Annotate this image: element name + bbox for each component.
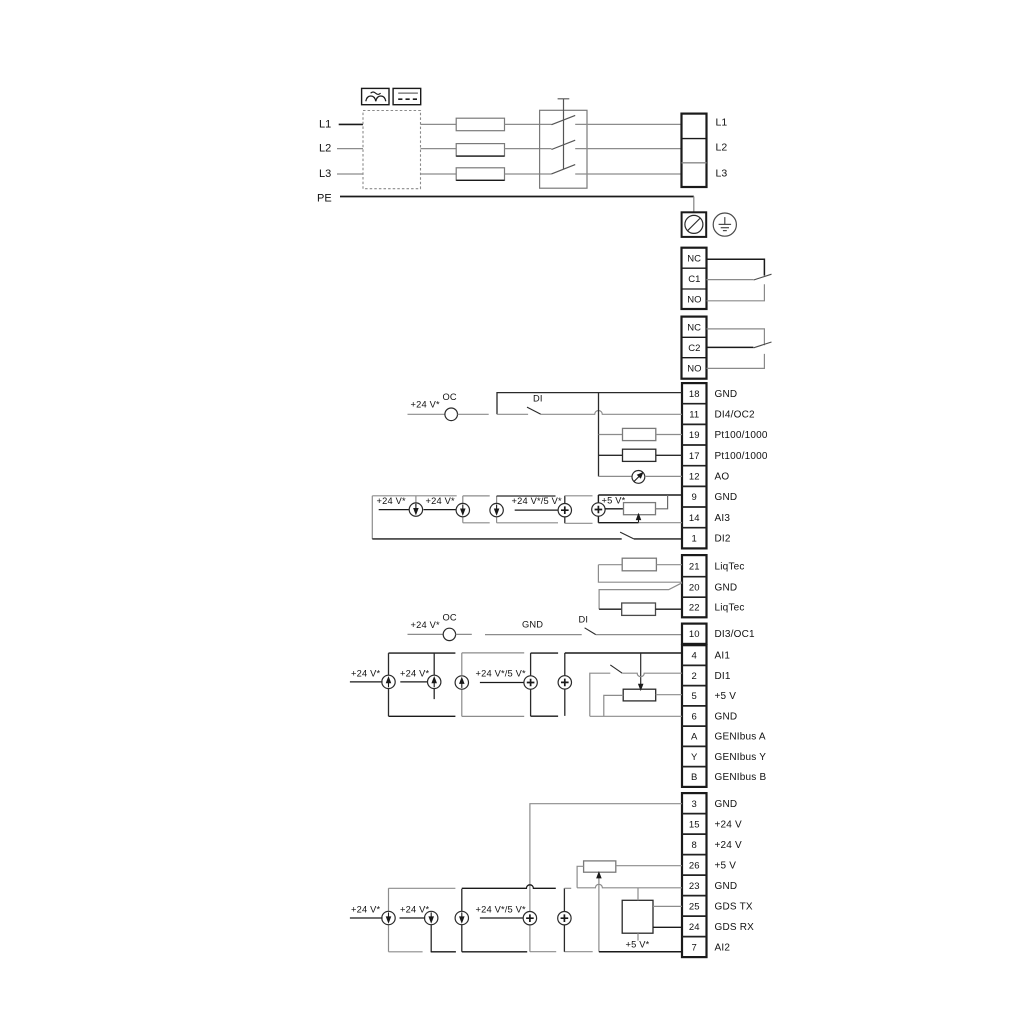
- svg-text:25: 25: [689, 901, 700, 912]
- svg-text:+5 V*: +5 V*: [626, 940, 650, 950]
- svg-text:DI1: DI1: [715, 671, 731, 682]
- svg-text:+24 V*: +24 V*: [411, 620, 440, 630]
- svg-text:DI2: DI2: [715, 534, 731, 545]
- svg-text:+5 V*: +5 V*: [602, 496, 626, 506]
- svg-text:L2: L2: [319, 143, 331, 155]
- svg-text:+5 V: +5 V: [715, 691, 737, 702]
- svg-text:NC: NC: [687, 322, 701, 333]
- svg-text:+24 V: +24 V: [715, 840, 743, 851]
- svg-text:AI1: AI1: [715, 651, 731, 662]
- svg-text:1: 1: [692, 534, 697, 545]
- svg-text:Pt100/1000: Pt100/1000: [715, 430, 768, 441]
- svg-text:DI4/OC2: DI4/OC2: [715, 409, 756, 420]
- svg-text:+24 V: +24 V: [715, 819, 743, 830]
- svg-text:LiqTec: LiqTec: [715, 603, 745, 614]
- svg-text:GDS TX: GDS TX: [715, 901, 753, 912]
- svg-text:+24 V*/5 V*: +24 V*/5 V*: [512, 496, 563, 506]
- svg-text:L3: L3: [716, 168, 728, 180]
- svg-text:6: 6: [692, 711, 697, 722]
- svg-text:12: 12: [689, 472, 700, 483]
- svg-text:PE: PE: [317, 193, 332, 205]
- svg-text:GND: GND: [715, 881, 738, 892]
- svg-text:L3: L3: [319, 168, 331, 180]
- svg-text:GENIbus B: GENIbus B: [715, 772, 767, 783]
- svg-text:8: 8: [692, 840, 697, 851]
- svg-text:4: 4: [692, 651, 697, 662]
- svg-text:GND: GND: [715, 389, 738, 400]
- svg-text:3: 3: [692, 799, 697, 810]
- svg-text:GND: GND: [715, 711, 738, 722]
- svg-text:+5 V: +5 V: [715, 860, 737, 871]
- svg-text:+24 V*: +24 V*: [426, 496, 455, 506]
- svg-text:+24 V*: +24 V*: [377, 496, 406, 506]
- svg-text:AI3: AI3: [715, 513, 731, 524]
- svg-text:22: 22: [689, 603, 700, 614]
- svg-text:L2: L2: [716, 142, 728, 154]
- svg-text:Y: Y: [691, 752, 698, 763]
- svg-text:9: 9: [692, 492, 697, 503]
- svg-text:24: 24: [689, 922, 700, 933]
- svg-text:LiqTec: LiqTec: [715, 561, 745, 572]
- svg-text:+24 V*: +24 V*: [400, 905, 429, 915]
- svg-text:GND: GND: [715, 492, 738, 503]
- svg-text:+24 V*: +24 V*: [400, 669, 429, 679]
- svg-text:NC: NC: [687, 253, 701, 264]
- svg-text:GND: GND: [715, 582, 738, 593]
- svg-text:DI3/OC1: DI3/OC1: [715, 629, 756, 640]
- svg-text:AI2: AI2: [715, 942, 731, 953]
- svg-text:GDS RX: GDS RX: [715, 922, 755, 933]
- svg-text:NO: NO: [687, 295, 701, 306]
- svg-text:+24 V*: +24 V*: [411, 399, 440, 409]
- svg-text:GENIbus A: GENIbus A: [715, 732, 766, 743]
- svg-text:+24 V*: +24 V*: [351, 669, 380, 679]
- svg-text:18: 18: [689, 389, 700, 400]
- svg-text:NO: NO: [687, 364, 701, 375]
- svg-text:2: 2: [692, 671, 697, 682]
- svg-text:DI: DI: [579, 615, 589, 625]
- svg-text:GND: GND: [715, 799, 738, 810]
- svg-text:GND: GND: [522, 620, 543, 630]
- svg-text:+24 V*/5 V*: +24 V*/5 V*: [476, 905, 527, 915]
- svg-text:OC: OC: [443, 392, 457, 402]
- svg-text:AO: AO: [715, 472, 730, 483]
- svg-text:14: 14: [689, 513, 700, 524]
- svg-text:L1: L1: [319, 119, 331, 131]
- svg-text:20: 20: [689, 582, 700, 593]
- svg-text:5: 5: [692, 691, 697, 702]
- svg-text:L1: L1: [716, 117, 728, 129]
- svg-text:26: 26: [689, 860, 700, 871]
- svg-text:17: 17: [689, 451, 700, 462]
- svg-text:7: 7: [692, 942, 697, 953]
- svg-text:B: B: [691, 772, 697, 783]
- svg-text:Pt100/1000: Pt100/1000: [715, 451, 768, 462]
- svg-text:A: A: [691, 732, 698, 743]
- svg-text:15: 15: [689, 819, 700, 830]
- svg-text:C2: C2: [688, 343, 700, 354]
- svg-text:21: 21: [689, 561, 700, 572]
- svg-text:+24 V*: +24 V*: [351, 905, 380, 915]
- svg-text:19: 19: [689, 430, 700, 441]
- svg-text:11: 11: [689, 409, 699, 420]
- svg-text:10: 10: [689, 629, 700, 640]
- svg-text:OC: OC: [443, 613, 457, 623]
- svg-text:GENIbus Y: GENIbus Y: [715, 752, 767, 763]
- svg-text:C1: C1: [688, 274, 700, 285]
- svg-text:DI: DI: [533, 394, 543, 404]
- svg-text:+24 V*/5 V*: +24 V*/5 V*: [476, 669, 527, 679]
- svg-text:23: 23: [689, 881, 700, 892]
